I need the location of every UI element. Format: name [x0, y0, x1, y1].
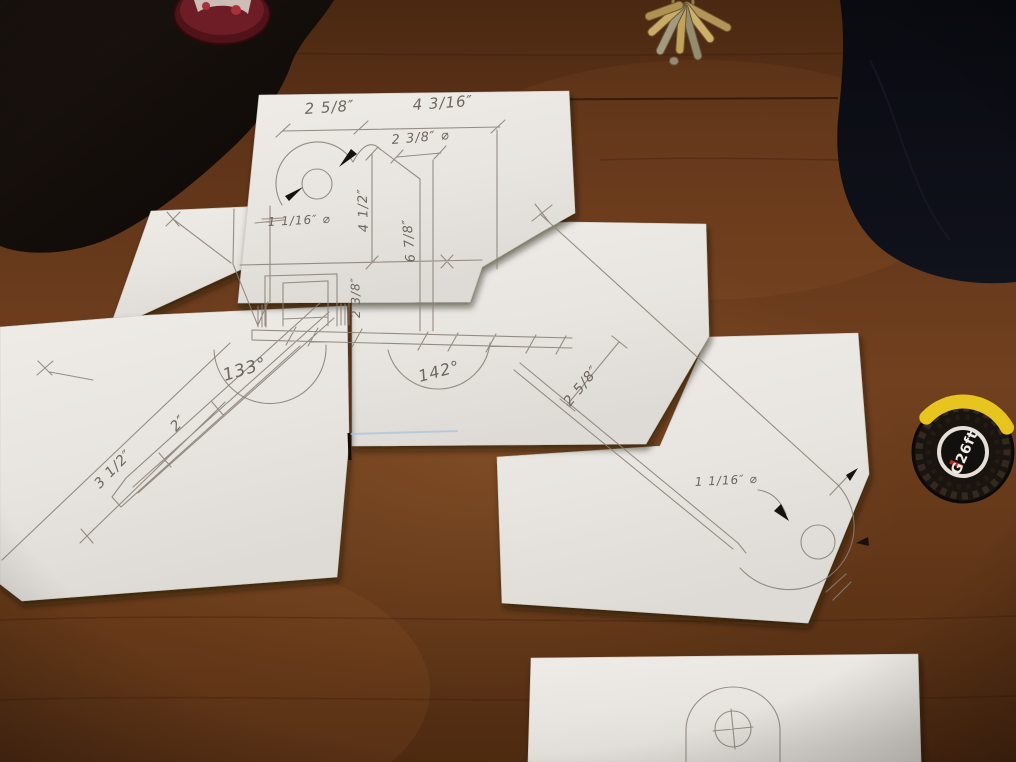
photo-scene: 2 5/8″ 4 3/16″ 2 3/8″ ⌀ 1 1/16″ ⌀ 4 1/2″… [0, 0, 1016, 762]
vignette [0, 0, 1016, 762]
scene-canvas: 2 5/8″ 4 3/16″ 2 3/8″ ⌀ 1 1/16″ ⌀ 4 1/2″… [0, 0, 1016, 762]
